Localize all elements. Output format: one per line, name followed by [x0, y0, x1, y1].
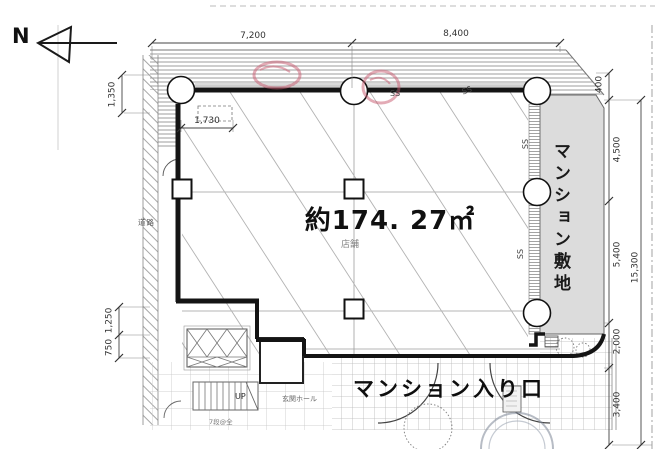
up-label: UP: [235, 393, 246, 401]
floor-plan: N 約174. 27㎡ 店舗 マンション敷地 マンション入り口 玄関ホール UP…: [0, 0, 661, 449]
area-label: 約174. 27㎡: [275, 208, 505, 234]
elevator-shaft: [184, 326, 250, 370]
site-area-label: マンション敷地: [551, 142, 568, 332]
shop-room-label: 店舗: [341, 241, 359, 250]
hall-label: 玄関ホール: [282, 396, 317, 403]
dim-right-2000: 2,000: [614, 322, 623, 362]
brace-label: SS: [390, 90, 400, 98]
dim-left-750: 750: [106, 328, 115, 368]
dim-left-1730: 1,730: [181, 117, 233, 126]
dim-right-15300: 15,300: [632, 243, 641, 293]
columns: [168, 77, 551, 327]
north-arrow-icon: [38, 27, 117, 62]
road-label: 道路: [138, 219, 155, 227]
dim-top-8400: 8,400: [428, 30, 484, 39]
dim-right-3400: 3,400: [614, 385, 623, 425]
utility-room: [260, 338, 303, 383]
brace-label: SS: [517, 249, 525, 259]
stair-note: 7段@全: [209, 419, 233, 426]
north-label: N: [12, 26, 30, 47]
dim-right-400: 400: [596, 65, 605, 105]
dim-right-4500: 4,500: [614, 130, 623, 170]
dim-top-7200: 7,200: [225, 32, 281, 41]
dim-left-1350: 1,350: [109, 75, 118, 115]
dim-right-5400: 5,400: [614, 235, 623, 275]
brace-label: SS: [522, 139, 530, 149]
entrance-label: マンション入り口: [353, 379, 545, 400]
